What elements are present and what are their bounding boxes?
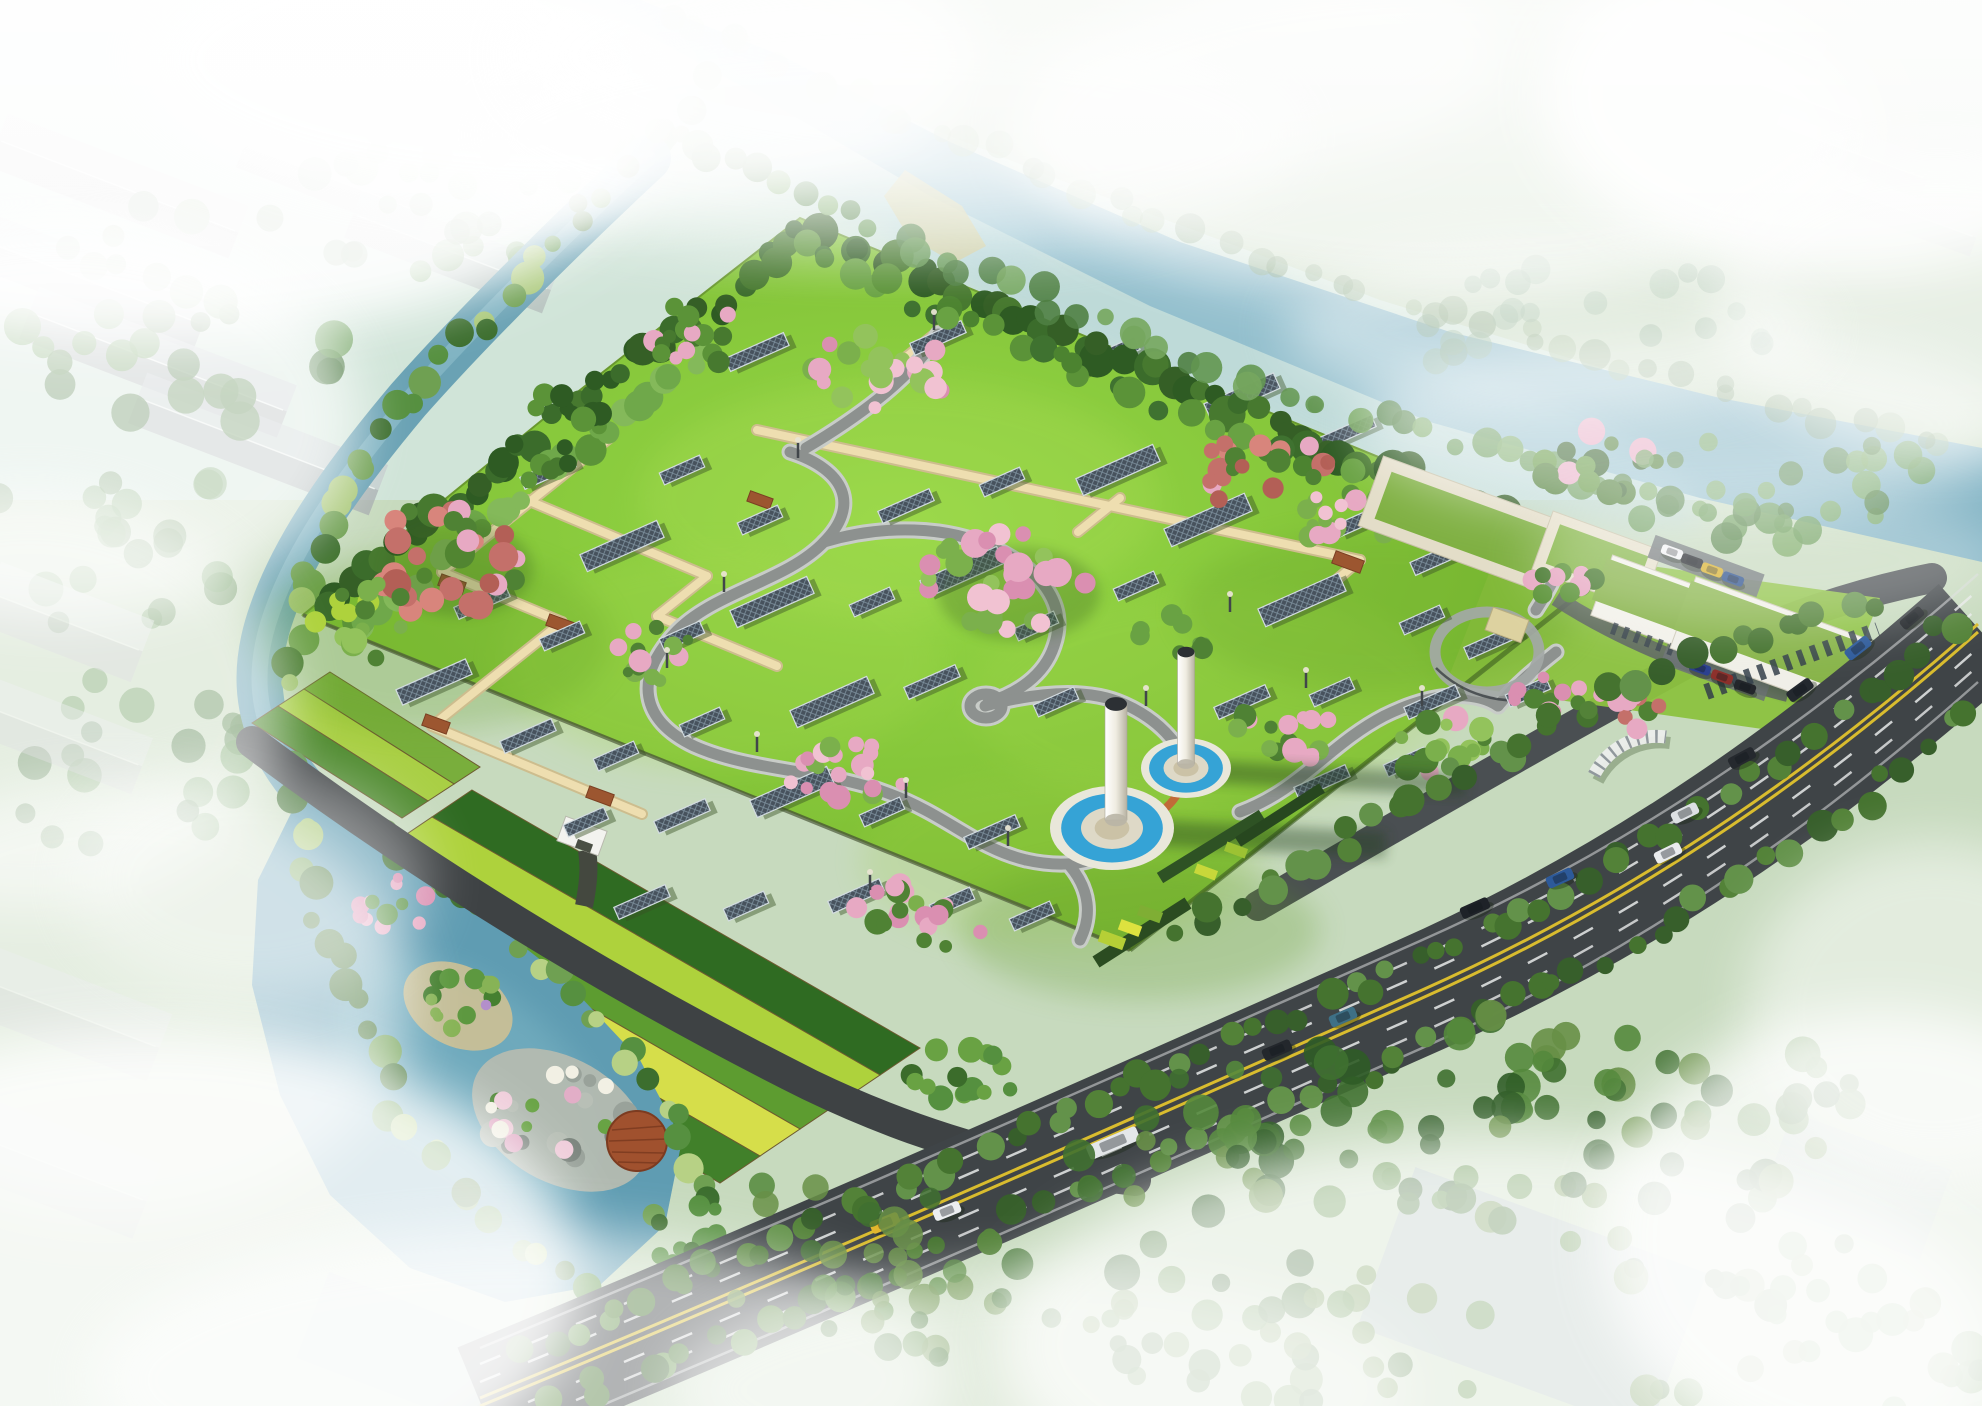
rendering-canvas bbox=[0, 0, 1982, 1406]
aerial-site-rendering bbox=[0, 0, 1982, 1406]
top-fade bbox=[0, 0, 1982, 300]
scene-paint-root bbox=[0, 0, 1982, 1406]
gate-drive bbox=[584, 850, 588, 906]
